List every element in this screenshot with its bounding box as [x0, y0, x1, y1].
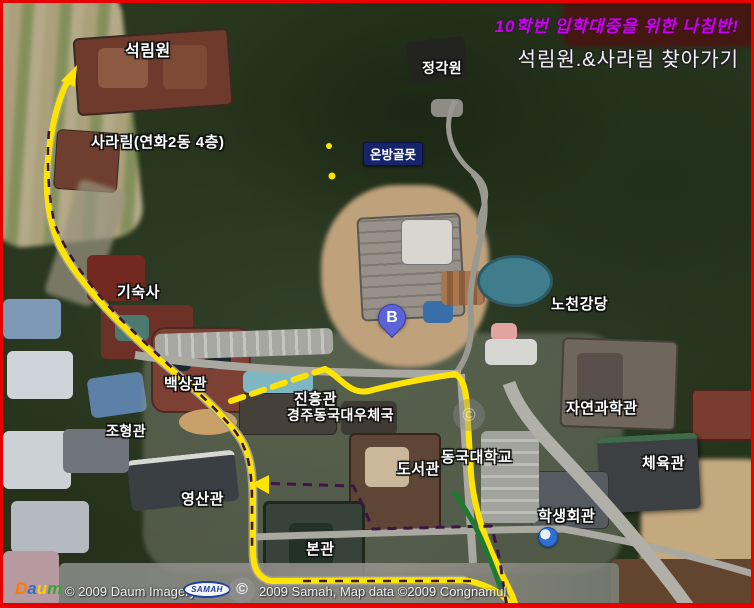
label-postoffice: 경주동국대우체국: [287, 405, 394, 425]
label-sararim: 사라림(연화2동 4층): [91, 131, 224, 152]
label-baeksanggwan: 백상관: [164, 373, 207, 394]
route-dot-1: [326, 143, 332, 149]
label-johyeonggwan: 조형관: [106, 421, 146, 441]
label-doseogwan: 도서관: [397, 458, 440, 479]
label-haksaenghoegwan: 학생회관: [538, 505, 595, 526]
route-dot-2: [329, 173, 336, 180]
label-onbanggolmot: 온방골못: [363, 142, 423, 166]
daum-logo: Daum: [15, 579, 62, 599]
label-donggukuniv: 동국대학교: [441, 446, 513, 467]
daum-logo-d: D: [15, 579, 27, 599]
label-jeonggagwon: 정각원: [422, 58, 462, 78]
watermark-circle-copyright: ©: [229, 577, 255, 603]
label-yeongsangwan: 영산관: [181, 488, 224, 509]
route-purple-on-left: [48, 131, 252, 548]
route-overlay: [3, 3, 754, 608]
attribution-right: 2009 Samah, Map data ©2009 Congnamul: [259, 584, 506, 599]
label-bongwan: 본관: [306, 538, 335, 559]
road-top-winding: [448, 101, 485, 235]
road-horizontal-mid: [135, 355, 461, 374]
label-gisuksa: 기숙사: [117, 281, 160, 302]
marker-b-label: B: [386, 309, 398, 326]
watermark-circle-map: ©: [453, 399, 485, 431]
label-cheyukgwan: 체육관: [642, 452, 685, 473]
page-subtitle: 석림원.&사라림 찾아가기: [518, 43, 739, 72]
label-jayeongwahakgwan: 자연과학관: [566, 397, 638, 418]
attribution-left: © 2009 Daum Imagery: [65, 584, 196, 599]
map-canvas[interactable]: © 석림원 사라림(연화2동 4층) 정각원 온방골못 기숙사 노천강당 백상관…: [0, 0, 754, 608]
marker-b-pin[interactable]: B: [378, 304, 406, 332]
samah-logo: SAMAH: [183, 581, 231, 598]
poi-globe-icon: [538, 527, 558, 547]
road-construction-ring: [455, 173, 485, 375]
page-title: 10학번 입학대중을 위한 나침반!: [495, 12, 739, 37]
daum-logo-m: m: [47, 579, 62, 599]
daum-logo-u: u: [37, 579, 47, 599]
daum-logo-a: a: [27, 579, 36, 599]
label-nocheongangdang: 노천강당: [551, 293, 608, 314]
label-seokrimwon: 석림원: [125, 37, 171, 61]
